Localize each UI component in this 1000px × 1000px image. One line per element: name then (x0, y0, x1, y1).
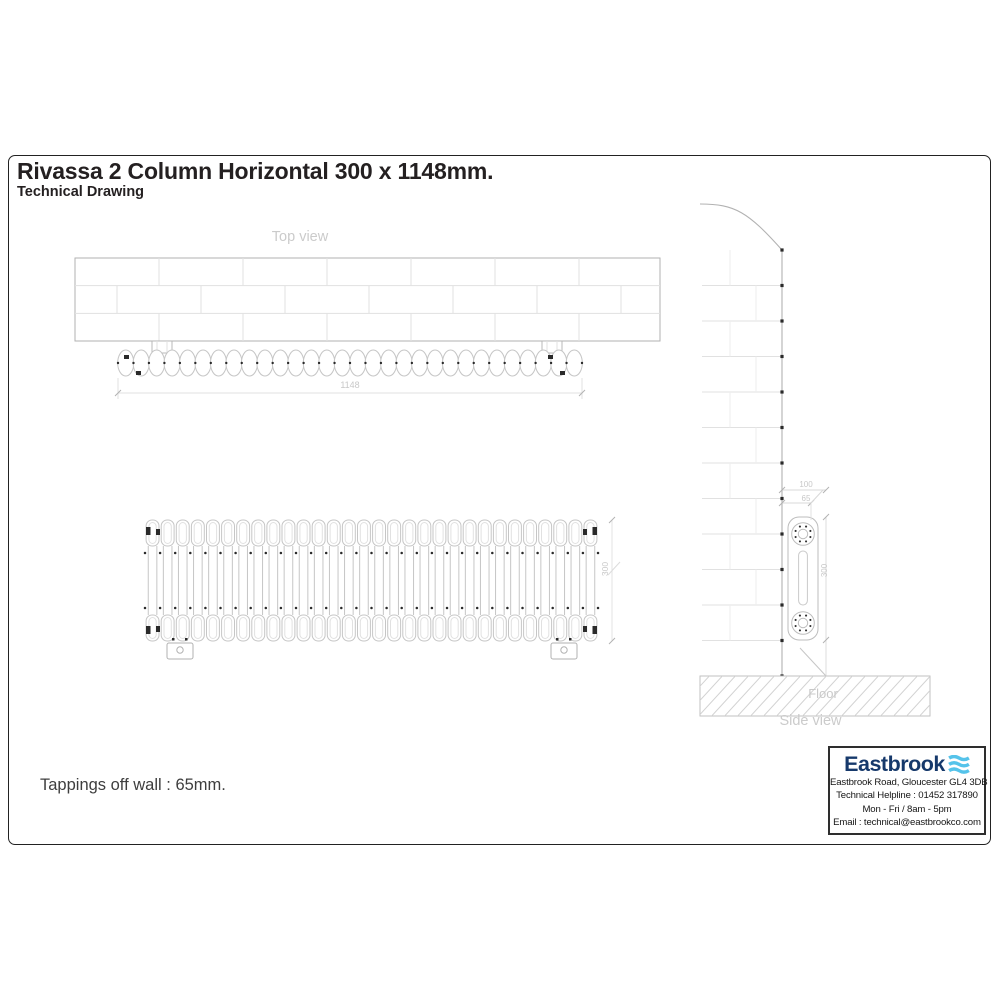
brand-row: Eastbrook (830, 752, 984, 776)
side-offwall-dimension: 65 (795, 494, 817, 503)
address-line: Eastbrook Road, Gloucester GL4 3DB (830, 776, 984, 789)
brand-wordmark: Eastbrook (844, 753, 945, 775)
front-view-drawing (130, 500, 640, 670)
hours-line: Mon - Fri / 8am - 5pm (830, 803, 984, 816)
tappings-note: Tappings off wall : 65mm. (40, 776, 226, 795)
email-line: Email : technical@eastbrookco.com (830, 816, 984, 829)
floor-label: Floor (797, 686, 849, 701)
side-height-dimension: 300 (820, 564, 829, 577)
manufacturer-infobox: Eastbrook Eastbrook Road, Gloucester GL4… (828, 746, 986, 835)
side-view-drawing (690, 190, 950, 740)
side-view-label: Side view (768, 713, 853, 729)
contact-lines: Eastbrook Road, Gloucester GL4 3DB Techn… (830, 776, 984, 830)
page-subtitle: Technical Drawing (17, 184, 493, 200)
front-height-dimension: 300 (600, 562, 610, 576)
side-offwall-outer-dimension: 100 (793, 480, 819, 489)
page-title: Rivassa 2 Column Horizontal 300 x 1148mm… (17, 158, 493, 184)
length-dimension: 1148 (325, 380, 375, 390)
top-view-label: Top view (250, 229, 350, 245)
title-block: Rivassa 2 Column Horizontal 300 x 1148mm… (17, 158, 493, 200)
technical-drawing-page: Rivassa 2 Column Horizontal 300 x 1148mm… (0, 0, 1000, 1000)
eastbrook-waves-icon (948, 755, 970, 774)
helpline-line: Technical Helpline : 01452 317890 (830, 789, 984, 802)
